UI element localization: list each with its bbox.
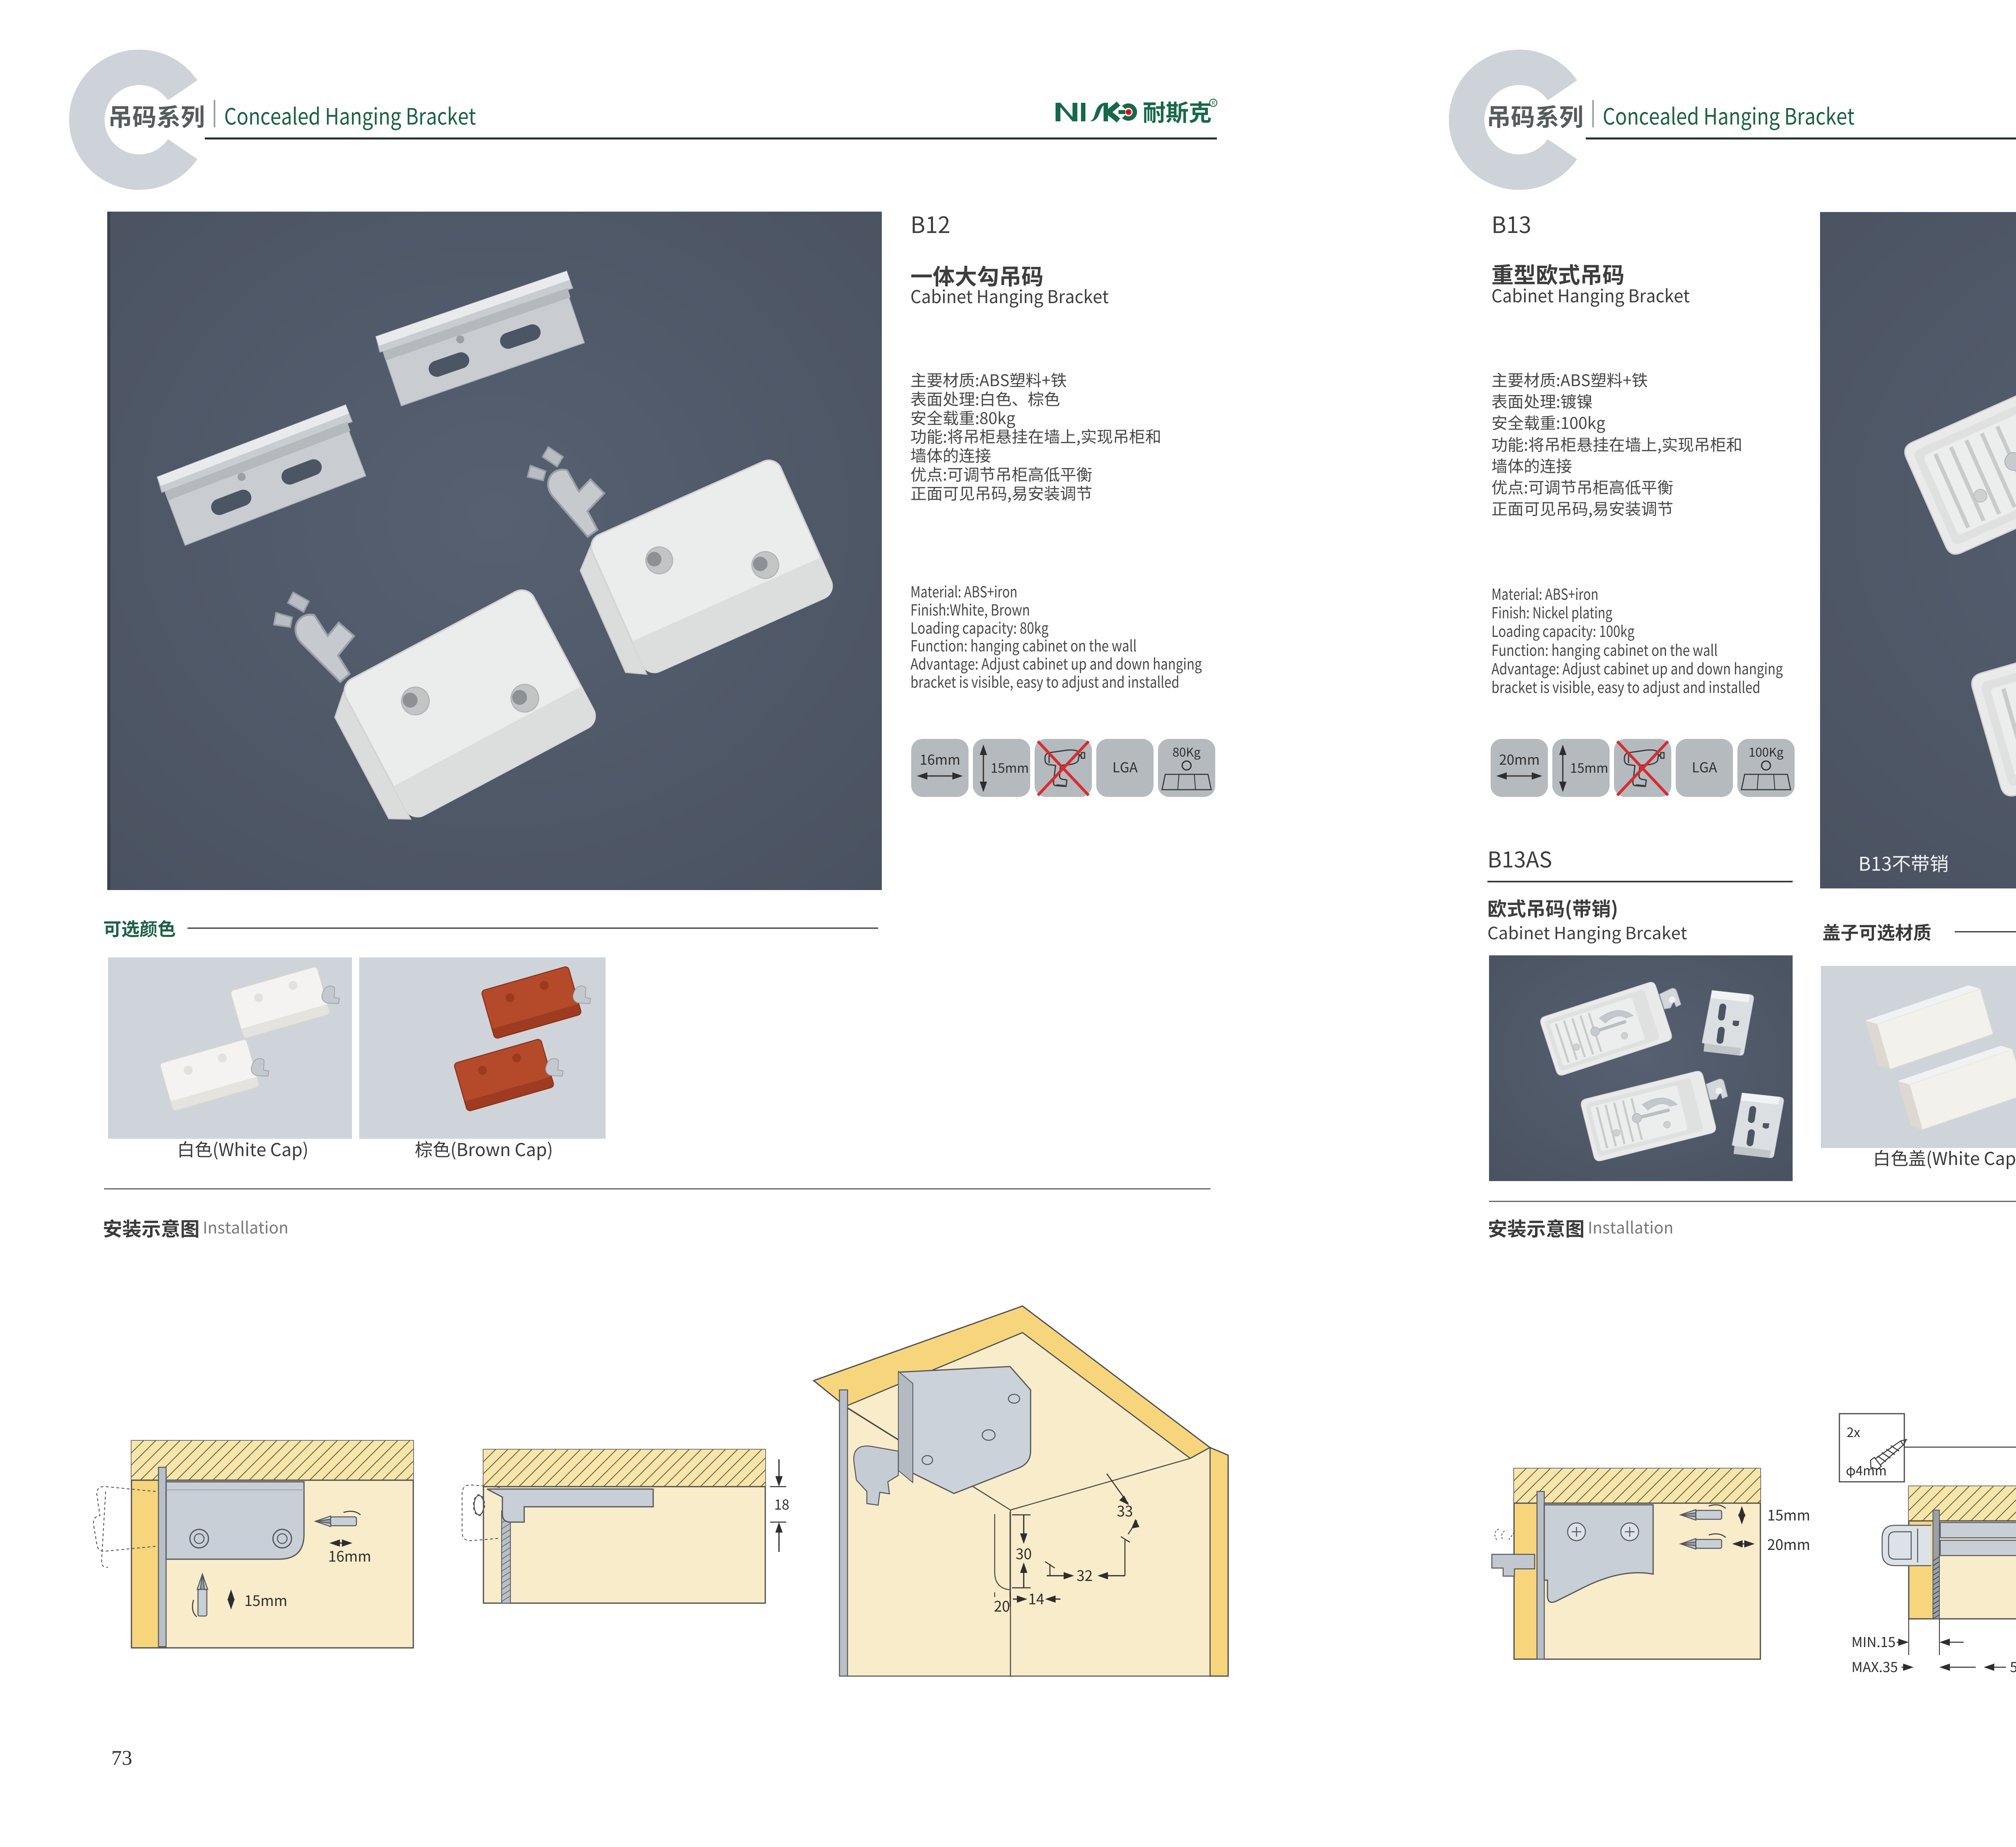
- svg-text:73: 73: [111, 1747, 132, 1770]
